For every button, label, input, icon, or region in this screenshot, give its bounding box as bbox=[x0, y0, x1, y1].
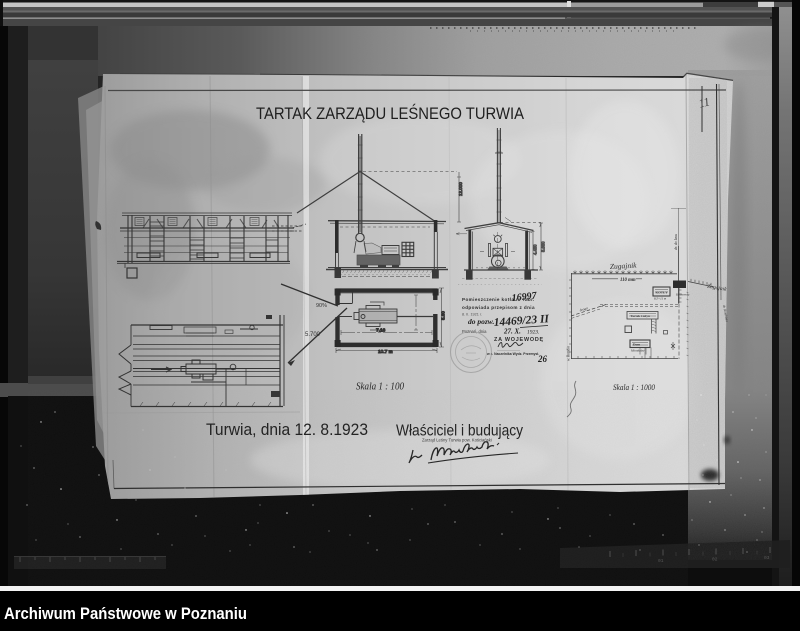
svg-text:odpowiada przepisom z dnia: odpowiada przepisom z dnia bbox=[462, 305, 535, 310]
svg-text:ZA WOJEWODĘ: ZA WOJEWODĘ bbox=[494, 337, 544, 343]
svg-text:27. X.: 27. X. bbox=[503, 328, 521, 336]
svg-text:8. II. 1921 r.: 8. II. 1921 r. bbox=[462, 313, 482, 317]
svg-text:Archiwum Państwowe w Poznaniu: Archiwum Państwowe w Poznaniu bbox=[4, 605, 247, 623]
svg-text:Kotłownia: Kotłownia bbox=[675, 293, 690, 297]
svg-text:90%: 90% bbox=[316, 303, 327, 309]
svg-text:TARTAK ZARZĄDU LEŚNEGO TURWIA: TARTAK ZARZĄDU LEŚNEGO TURWIA bbox=[256, 104, 524, 123]
svg-text:KOTŁY: KOTŁY bbox=[656, 291, 669, 295]
svg-text:Dom: Dom bbox=[633, 343, 640, 347]
svg-text:5.700: 5.700 bbox=[305, 332, 321, 338]
svg-text:7.16: 7.16 bbox=[376, 328, 386, 334]
svg-text:4.450: 4.450 bbox=[533, 244, 538, 255]
svg-text:Zugajnik: Zugajnik bbox=[610, 261, 638, 271]
svg-text:Tartak i młyn: Tartak i młyn bbox=[631, 314, 650, 318]
svg-text:5.60: 5.60 bbox=[441, 311, 446, 320]
svg-text:12.000: 12.000 bbox=[458, 182, 463, 196]
svg-text:w. Rombin: w. Rombin bbox=[567, 346, 571, 361]
svg-text:26: 26 bbox=[537, 354, 548, 364]
svg-text:do pozw.: do pozw. bbox=[468, 317, 495, 326]
svg-text:110 mm: 110 mm bbox=[620, 278, 636, 283]
svg-text:10.7 m: 10.7 m bbox=[378, 349, 393, 355]
svg-text:dr. do lasu: dr. do lasu bbox=[674, 234, 678, 250]
svg-text:5.880: 5.880 bbox=[541, 241, 546, 252]
svg-text:1923.: 1923. bbox=[527, 330, 539, 336]
svg-text:w z. Naczelnika Wydz. Przemysł: w z. Naczelnika Wydz. Przemysł. bbox=[486, 352, 539, 356]
svg-text:Mieszkalny: Mieszkalny bbox=[630, 349, 645, 353]
